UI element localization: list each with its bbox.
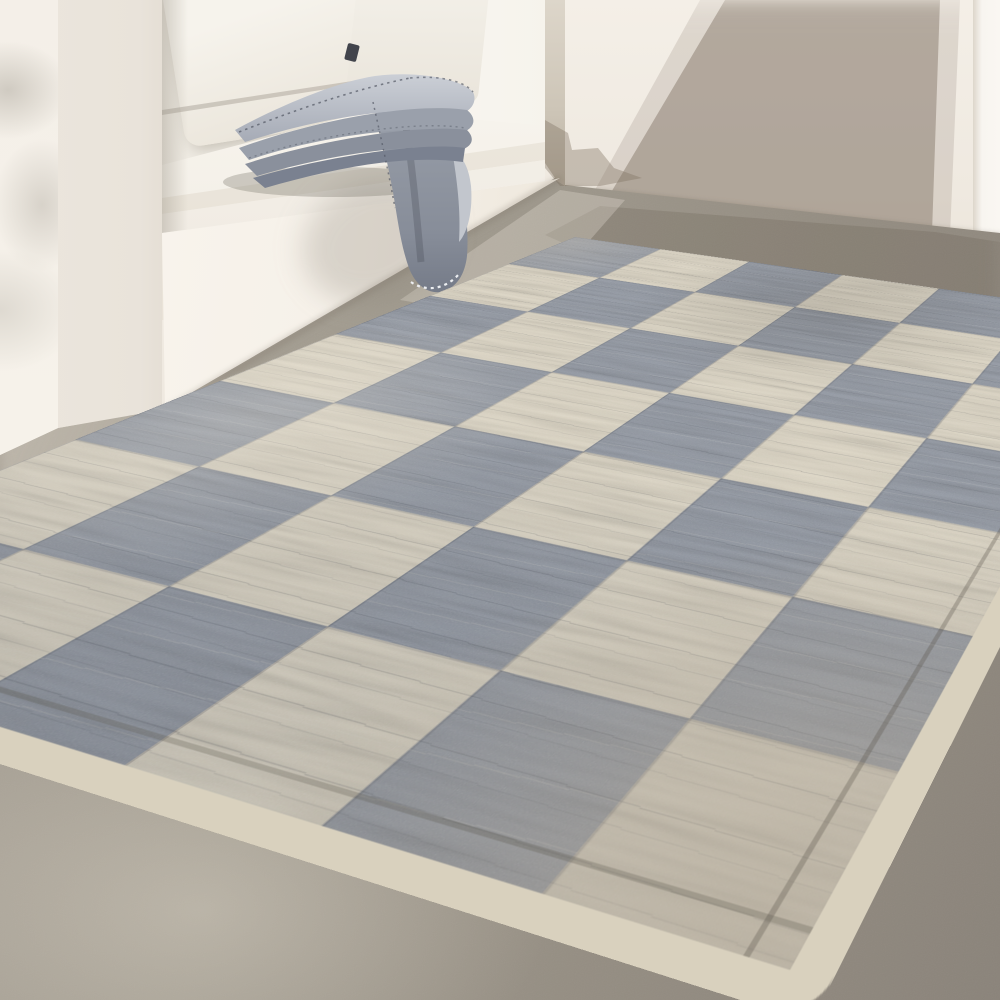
alcove-bench	[0, 0, 1000, 500]
throw-blanket	[205, 30, 495, 330]
niche-corner-shadow	[162, 0, 188, 233]
left-wall-leaf-shadows	[0, 0, 58, 455]
interior-photo	[0, 0, 1000, 1000]
